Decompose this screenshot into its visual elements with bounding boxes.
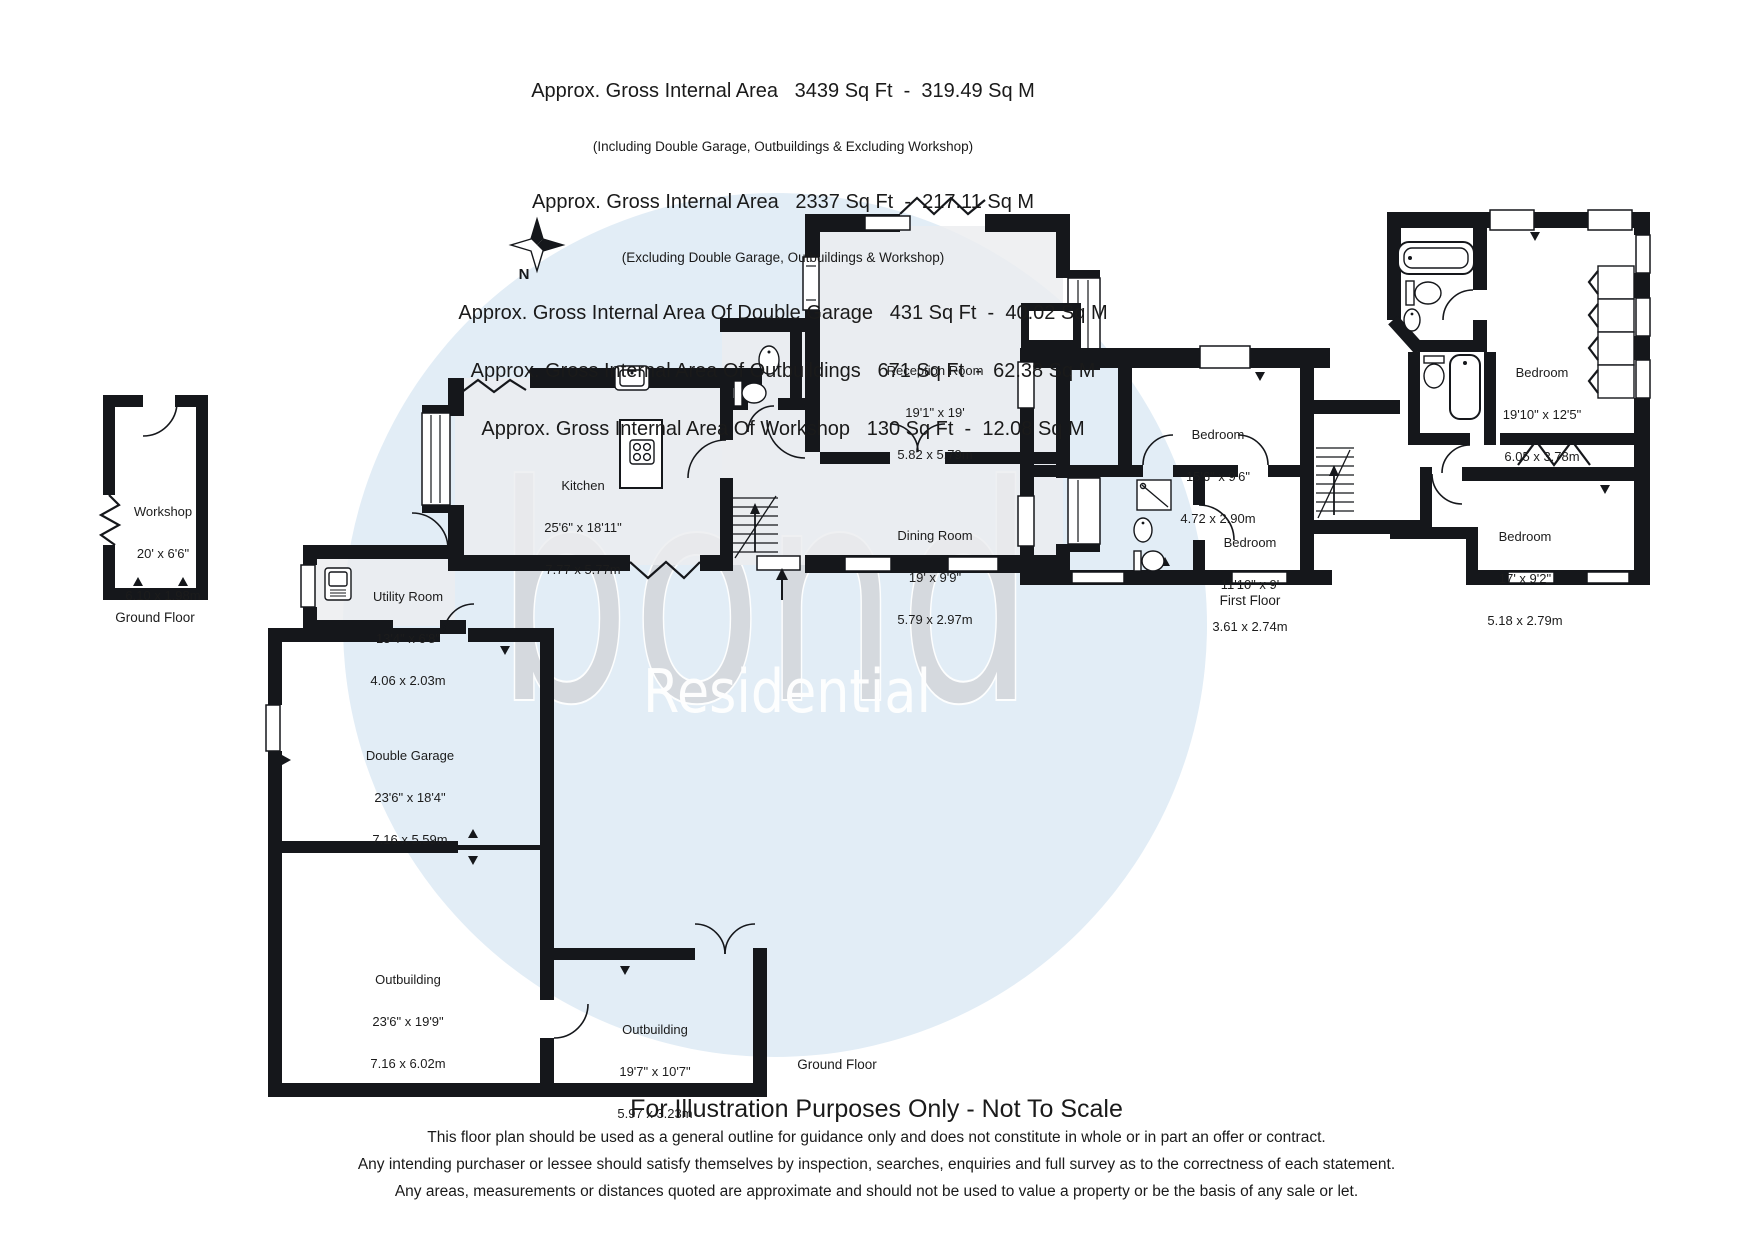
header-areas: Approx. Gross Internal Area 3439 Sq Ft -… — [283, 44, 1283, 458]
dining-label: Dining Room 19' x 9'9" 5.79 x 2.97m — [897, 501, 972, 641]
kitchen-label: Kitchen 25'6" x 18'11" 7.77 x 5.77m — [544, 451, 622, 591]
gross-area-including: Approx. Gross Internal Area 3439 Sq Ft -… — [283, 80, 1283, 102]
utility-name: Utility Room — [370, 590, 445, 604]
gross-area-garage: Approx. Gross Internal Area Of Double Ga… — [283, 302, 1283, 324]
kitchen-metric: 7.77 x 5.77m — [544, 563, 622, 577]
workshop-floor-caption: Ground Floor — [115, 610, 195, 625]
outbuilding1-imperial: 23'6" x 19'9" — [370, 1015, 445, 1029]
garage-imperial: 23'6" x 18'4" — [366, 791, 454, 805]
reception-label: Reception Room 19'1" x 19' 5.82 x 5.79m — [887, 336, 984, 476]
footer-title: For Illustration Purposes Only - Not To … — [0, 1094, 1753, 1124]
kitchen-imperial: 25'6" x 18'11" — [544, 521, 622, 535]
bedroom2-metric: 3.61 x 2.74m — [1212, 620, 1287, 634]
dining-name: Dining Room — [897, 529, 972, 543]
workshop-metric: 6.10 x 1.98m — [125, 589, 200, 603]
compass-north-label: N — [519, 266, 530, 283]
garage-label: Double Garage 23'6" x 18'4" 7.16 x 5.59m — [366, 721, 454, 861]
shower-icon — [1137, 480, 1171, 510]
floorplan-page: bond Residential — [0, 0, 1753, 1240]
bathroom1-basin-icon — [1404, 309, 1420, 331]
bathroom1-bath-icon — [1398, 242, 1474, 274]
outbuilding2-imperial: 19'7" x 10'7" — [617, 1065, 692, 1079]
bedroom4-metric: 5.18 x 2.79m — [1487, 614, 1562, 628]
utility-metric: 4.06 x 2.03m — [370, 674, 445, 688]
workshop-imperial: 20' x 6'6" — [125, 547, 200, 561]
gross-area-workshop: Approx. Gross Internal Area Of Workshop … — [283, 418, 1283, 440]
bedroom3-label: Bedroom 19'10" x 12'5" 6.05 x 3.78m — [1503, 338, 1582, 478]
wardrobe-icon — [1589, 266, 1634, 398]
bathroom1-toilet-icon — [1406, 281, 1441, 305]
garage-metric: 7.16 x 5.59m — [366, 833, 454, 847]
gross-area-including-note: (Including Double Garage, Outbuildings &… — [283, 138, 1283, 155]
first-floor-stairs — [1316, 448, 1354, 518]
outbuilding1-name: Outbuilding — [370, 973, 445, 987]
bedroom2-label: Bedroom 11'10" x 9' 3.61 x 2.74m — [1212, 508, 1287, 648]
outbuilding2-name: Outbuilding — [617, 1023, 692, 1037]
bedroom4-name: Bedroom — [1487, 530, 1562, 544]
first-floor-caption: First Floor — [1220, 593, 1281, 608]
footer-disclaimer: For Illustration Purposes Only - Not To … — [0, 1094, 1753, 1205]
gross-area-outbuildings: Approx. Gross Internal Area Of Outbuildi… — [283, 360, 1283, 382]
outbuilding1-metric: 7.16 x 6.02m — [370, 1057, 445, 1071]
footer-line-2: Any intending purchaser or lessee should… — [0, 1151, 1753, 1178]
utility-label: Utility Room 13'4" x 6'8" 4.06 x 2.03m — [370, 562, 445, 702]
bedroom4-imperial: 17' x 9'2" — [1487, 572, 1562, 586]
shower-room-toilet-icon — [1134, 551, 1164, 571]
utility-fixtures — [325, 568, 351, 600]
bathroom2-toilet-icon — [1424, 356, 1444, 388]
dining-metric: 5.79 x 2.97m — [897, 613, 972, 627]
footer-line-1: This floor plan should be used as a gene… — [0, 1124, 1753, 1151]
utility-imperial: 13'4" x 6'8" — [370, 632, 445, 646]
reception-name: Reception Room — [887, 364, 984, 378]
bedroom4-label: Bedroom 17' x 9'2" 5.18 x 2.79m — [1487, 502, 1562, 642]
kitchen-name: Kitchen — [544, 479, 622, 493]
bedroom2-name: Bedroom — [1212, 536, 1287, 550]
bathroom2-bath-icon — [1450, 355, 1480, 419]
main-floor-caption: Ground Floor — [797, 1057, 877, 1072]
workshop-label: Workshop 20' x 6'6" 6.10 x 1.98m — [125, 477, 200, 617]
washer-icon — [325, 568, 351, 600]
bedroom3-name: Bedroom — [1503, 366, 1582, 380]
footer-line-3: Any areas, measurements or distances quo… — [0, 1178, 1753, 1205]
outbuilding1-label: Outbuilding 23'6" x 19'9" 7.16 x 6.02m — [370, 945, 445, 1085]
bedroom2-imperial: 11'10" x 9' — [1212, 578, 1287, 592]
bedroom3-metric: 6.05 x 3.78m — [1503, 450, 1582, 464]
garage-name: Double Garage — [366, 749, 454, 763]
gross-area-excluding-note: (Excluding Double Garage, Outbuildings &… — [283, 249, 1283, 266]
workshop-name: Workshop — [125, 505, 200, 519]
bedroom1-name: Bedroom — [1180, 428, 1255, 442]
gross-area-excluding: Approx. Gross Internal Area 2337 Sq Ft -… — [283, 191, 1283, 213]
bedroom1-imperial: 15'6" x 9'6" — [1180, 470, 1255, 484]
shower-room-basin-icon — [1134, 518, 1152, 542]
dining-imperial: 19' x 9'9" — [897, 571, 972, 585]
reception-metric: 5.82 x 5.79m — [887, 448, 984, 462]
bedroom3-imperial: 19'10" x 12'5" — [1503, 408, 1582, 422]
reception-imperial: 19'1" x 19' — [887, 406, 984, 420]
watermark-sub-text: Residential — [643, 657, 931, 727]
